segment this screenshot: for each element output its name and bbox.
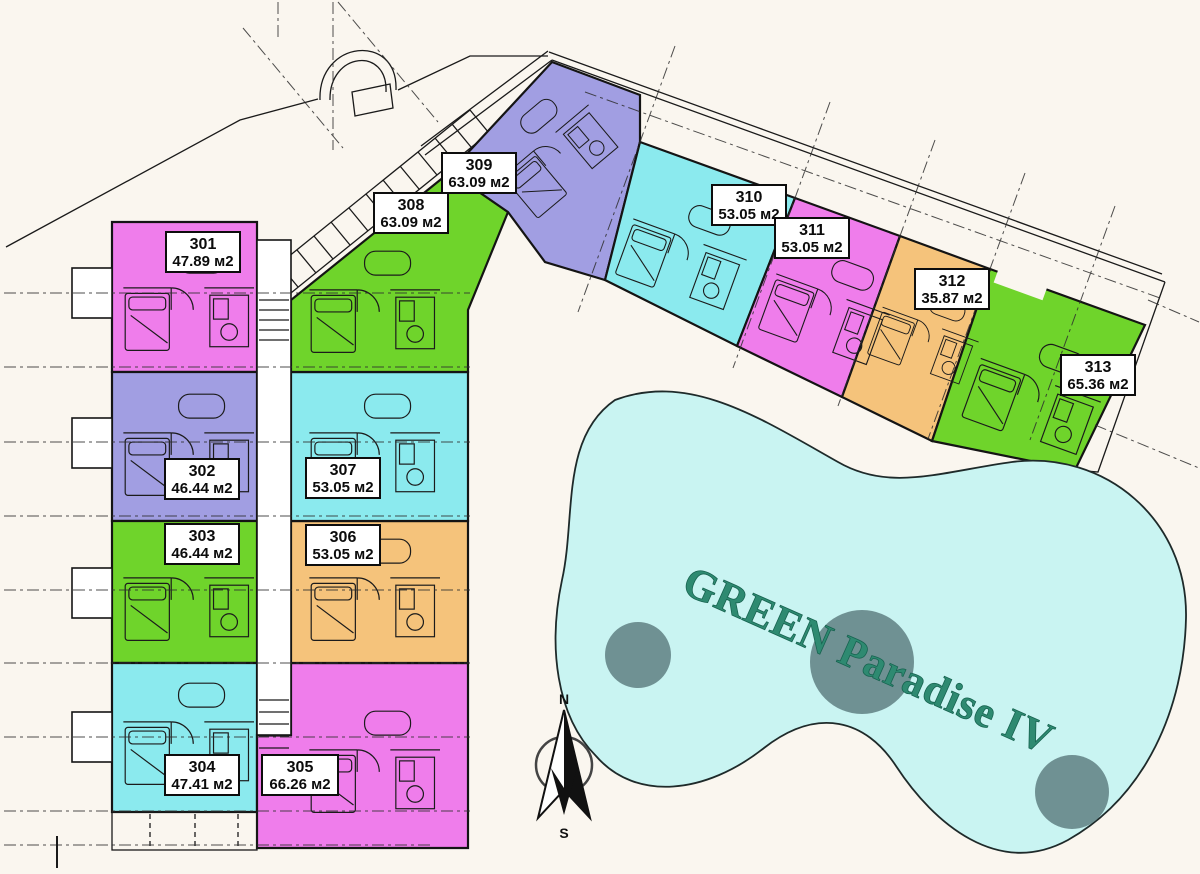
balcony — [72, 568, 112, 618]
unit-303-area: 46.44 м2 — [171, 545, 232, 562]
unit-305-area: 66.26 м2 — [269, 776, 330, 793]
unit-305-number: 305 — [287, 759, 314, 776]
floor-plan-page: GREEN Paradise IV 301 47.89 м2 302 46.44… — [0, 0, 1200, 874]
unit-303-number: 303 — [189, 528, 216, 545]
unit-304-label[interactable]: 304 47.41 м2 — [165, 755, 239, 795]
unit-308-label[interactable]: 308 63.09 м2 — [374, 193, 448, 233]
unit-306-label[interactable]: 306 53.05 м2 — [306, 525, 380, 565]
unit-312-label[interactable]: 312 35.87 м2 — [915, 269, 989, 309]
compass-north-label: N — [559, 691, 569, 707]
unit-311-number: 311 — [799, 222, 825, 239]
unit-313-label[interactable]: 313 65.36 м2 — [1061, 355, 1135, 395]
unit-310-number: 310 — [736, 189, 763, 206]
unit-304-number: 304 — [189, 759, 216, 776]
unit-302-number: 302 — [189, 463, 216, 480]
balcony — [72, 418, 112, 468]
unit-309-area: 63.09 м2 — [448, 174, 509, 191]
unit-306-number: 306 — [330, 529, 357, 546]
unit-301-number: 301 — [190, 236, 217, 253]
floor-plan-canvas: GREEN Paradise IV 301 47.89 м2 302 46.44… — [0, 0, 1200, 874]
unit-308-area: 63.09 м2 — [380, 214, 441, 231]
unit-310-area: 53.05 м2 — [718, 206, 779, 223]
unit-307-number: 307 — [330, 462, 357, 479]
unit-307-area: 53.05 м2 — [312, 479, 373, 496]
unit-306-area: 53.05 м2 — [312, 546, 373, 563]
unit-312-area: 35.87 м2 — [921, 290, 982, 307]
unit-304-area: 47.41 м2 — [171, 776, 232, 793]
unit-312-number: 312 — [939, 273, 966, 290]
unit-301-area: 47.89 м2 — [172, 253, 233, 270]
unit-313-number: 313 — [1085, 359, 1112, 376]
pool-island — [605, 622, 671, 688]
unit-302-label[interactable]: 302 46.44 м2 — [165, 459, 239, 499]
unit-308-number: 308 — [398, 197, 425, 214]
unit-305-label[interactable]: 305 66.26 м2 — [262, 755, 338, 795]
unit-307-label[interactable]: 307 53.05 м2 — [306, 458, 380, 498]
unit-311-area: 53.05 м2 — [781, 239, 842, 256]
unit-311-label[interactable]: 311 53.05 м2 — [775, 218, 849, 258]
unit-302-area: 46.44 м2 — [171, 480, 232, 497]
compass-south-label: S — [559, 825, 568, 841]
unit-303-label[interactable]: 303 46.44 м2 — [165, 524, 239, 564]
unit-309-label[interactable]: 309 63.09 м2 — [442, 153, 516, 193]
unit-309-number: 309 — [466, 157, 493, 174]
unit-313-area: 65.36 м2 — [1067, 376, 1128, 393]
pool-island — [1035, 755, 1109, 829]
unit-301-label[interactable]: 301 47.89 м2 — [166, 232, 240, 272]
corridor — [257, 240, 291, 735]
